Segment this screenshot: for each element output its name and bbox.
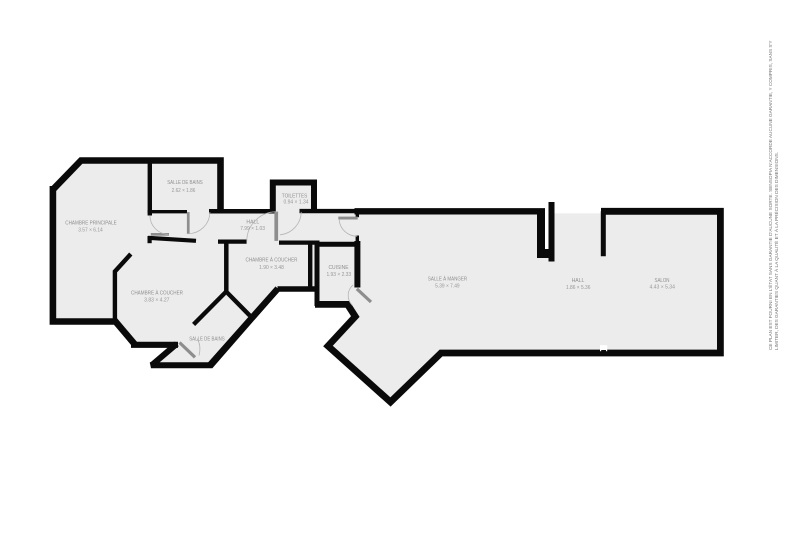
- svg-text:CUISINE: CUISINE: [329, 265, 349, 271]
- svg-text:3.57 × 6.14: 3.57 × 6.14: [78, 228, 103, 234]
- svg-text:SALON: SALON: [655, 278, 670, 284]
- svg-text:0.94 × 1.34: 0.94 × 1.34: [284, 199, 309, 205]
- svg-text:1.93 × 2.33: 1.93 × 2.33: [326, 272, 351, 278]
- svg-text:7.99 × 1.03: 7.99 × 1.03: [240, 226, 265, 232]
- svg-text:SALLE DE BAINS: SALLE DE BAINS: [167, 180, 203, 186]
- svg-text:3.83 × 4.27: 3.83 × 4.27: [144, 298, 169, 304]
- svg-text:HALL: HALL: [246, 220, 259, 226]
- svg-text:CHAMBRE À COUCHER: CHAMBRE À COUCHER: [131, 290, 183, 297]
- svg-text:CHAMBRE PRINCIPALE: CHAMBRE PRINCIPALE: [65, 221, 117, 227]
- svg-text:CHAMBRE À COUCHER: CHAMBRE À COUCHER: [246, 257, 298, 264]
- svg-text:2.62 × 1.86: 2.62 × 1.86: [172, 188, 196, 194]
- svg-text:SALLE À MANGER: SALLE À MANGER: [428, 275, 467, 282]
- svg-text:5.39 × 7.49: 5.39 × 7.49: [435, 284, 460, 290]
- svg-text:HALL: HALL: [572, 278, 585, 284]
- svg-text:4.43 × 5.34: 4.43 × 5.34: [649, 285, 675, 291]
- svg-text:1.90 × 3.48: 1.90 × 3.48: [259, 265, 284, 271]
- svg-text:1.86 × 5.36: 1.86 × 5.36: [566, 285, 591, 291]
- svg-text:SALLE DE BAINS: SALLE DE BAINS: [189, 337, 225, 343]
